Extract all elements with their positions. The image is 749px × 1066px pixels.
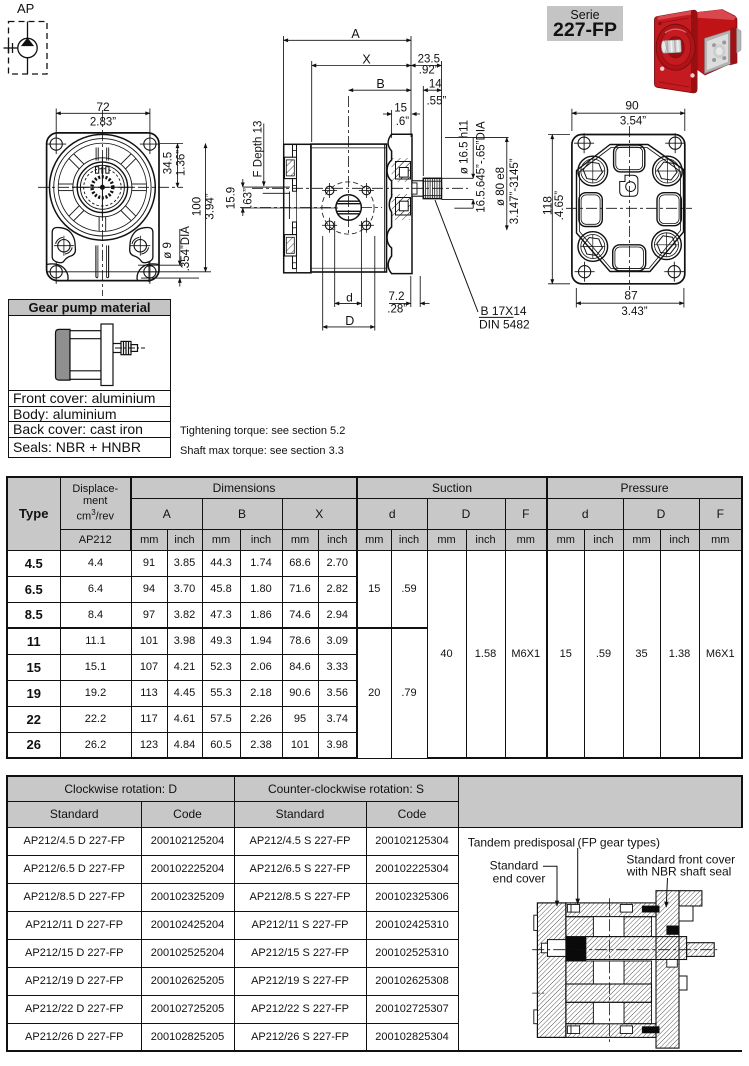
- svg-text:end cover: end cover: [493, 872, 546, 886]
- svg-text:14: 14: [429, 79, 442, 91]
- svg-text:118: 118: [541, 196, 555, 215]
- svg-text:3.54”: 3.54”: [620, 116, 646, 128]
- svg-text:D: D: [345, 314, 354, 328]
- svg-text:72: 72: [96, 100, 110, 114]
- svg-text:F Depth 13: F Depth 13: [253, 121, 265, 178]
- svg-text:15.9: 15.9: [226, 187, 238, 209]
- svg-text:16.5.645”-.65”DIA: 16.5.645”-.65”DIA: [476, 121, 488, 213]
- svg-text:15: 15: [394, 103, 407, 115]
- svg-text:Standard: Standard: [490, 859, 539, 873]
- svg-text:1.36”: 1.36”: [176, 150, 188, 176]
- svg-text:3.147”-3145”: 3.147”-3145”: [509, 158, 521, 224]
- svg-text:.4.65”: .4.65”: [554, 191, 566, 221]
- svg-text:3.94”: 3.94”: [204, 193, 216, 219]
- svg-text:.55”: .55”: [426, 96, 446, 108]
- svg-text:ø 16.5 h11: ø 16.5 h11: [459, 120, 471, 174]
- svg-text:3.43”: 3.43”: [621, 306, 647, 318]
- svg-text:DIN 5482: DIN 5482: [479, 318, 530, 332]
- svg-text:.63”: .63”: [242, 188, 254, 208]
- svg-text:d: d: [346, 291, 353, 305]
- svg-text:.354”DIA: .354”DIA: [180, 226, 192, 272]
- svg-text:7.2: 7.2: [389, 291, 405, 303]
- svg-text:A: A: [351, 27, 360, 41]
- svg-text:100: 100: [192, 197, 204, 216]
- svg-text:B: B: [376, 77, 384, 91]
- svg-text:.28”: .28”: [387, 304, 407, 316]
- svg-text:ø 80 e8: ø 80 e8: [495, 167, 507, 206]
- svg-text:B 17X14: B 17X14: [481, 304, 527, 318]
- svg-text:.92”: .92”: [419, 65, 439, 77]
- svg-text:87: 87: [624, 289, 638, 303]
- svg-text:90: 90: [625, 99, 639, 113]
- svg-text:.6”: .6”: [396, 116, 410, 128]
- svg-text:X: X: [362, 52, 371, 66]
- svg-text:2.83”: 2.83”: [90, 117, 116, 129]
- svg-text:Tandem predisposal (FP gear ty: Tandem predisposal (FP gear types): [468, 836, 660, 850]
- svg-text:with NBR shaft seal: with NBR shaft seal: [626, 865, 732, 879]
- svg-text:ø 9: ø 9: [162, 242, 174, 259]
- svg-text:34.5: 34.5: [162, 152, 174, 174]
